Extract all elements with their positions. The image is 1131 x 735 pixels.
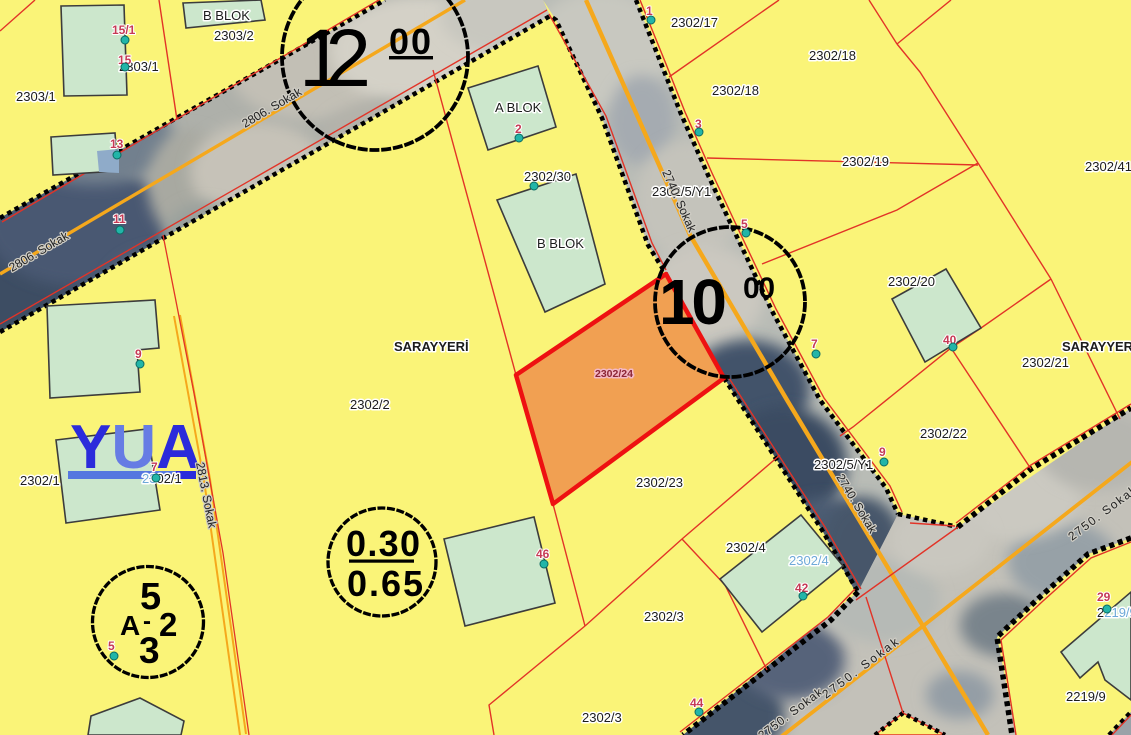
svg-text:2302/17: 2302/17 (671, 15, 718, 30)
svg-text:2303/2: 2303/2 (214, 28, 254, 43)
svg-text:29: 29 (1097, 590, 1111, 604)
svg-text:2302/21: 2302/21 (1022, 355, 1069, 370)
svg-text:2302/2: 2302/2 (350, 397, 390, 412)
svg-text:2: 2 (159, 606, 177, 643)
svg-text:SARAYYERİ: SARAYYERİ (1062, 339, 1131, 354)
svg-text:2302/1: 2302/1 (142, 471, 182, 486)
svg-text:2302/18: 2302/18 (712, 83, 759, 98)
svg-text:0.65: 0.65 (347, 563, 423, 604)
svg-text:A: A (120, 610, 140, 641)
svg-text:9: 9 (135, 347, 142, 361)
svg-text:SARAYYERİ: SARAYYERİ (394, 339, 469, 354)
svg-text:15/1: 15/1 (112, 23, 136, 37)
svg-text:B BLOK: B BLOK (203, 8, 250, 23)
svg-text:2219/9: 2219/9 (1066, 689, 1106, 704)
svg-text:2302/5/Y1: 2302/5/Y1 (814, 457, 873, 472)
svg-text:11: 11 (113, 212, 126, 226)
svg-text:2302/41: 2302/41 (1085, 159, 1131, 174)
svg-text:2219/9: 2219/9 (1097, 605, 1131, 620)
svg-text:2302/4: 2302/4 (726, 540, 766, 555)
svg-text:2302/23: 2302/23 (636, 475, 683, 490)
svg-text:9: 9 (879, 445, 886, 459)
svg-text:5: 5 (108, 639, 115, 653)
svg-text:2302/19: 2302/19 (842, 154, 889, 169)
svg-text:13: 13 (110, 137, 124, 151)
svg-text:2302/22: 2302/22 (920, 426, 967, 441)
svg-text:2302/4: 2302/4 (789, 553, 829, 568)
svg-text:A BLOK: A BLOK (495, 100, 542, 115)
svg-text:7: 7 (151, 460, 158, 474)
svg-text:10: 10 (659, 266, 727, 338)
svg-text:3: 3 (139, 630, 160, 671)
svg-text:00: 00 (389, 21, 431, 62)
svg-text:2302/24: 2302/24 (595, 368, 633, 380)
svg-text:B BLOK: B BLOK (537, 236, 584, 251)
svg-text:0.30: 0.30 (346, 523, 420, 564)
svg-text:2302/1: 2302/1 (20, 473, 60, 488)
svg-text:00: 00 (743, 272, 775, 305)
svg-text:44: 44 (690, 696, 704, 710)
svg-text:2302/20: 2302/20 (888, 274, 935, 289)
svg-text:2302/3: 2302/3 (644, 609, 684, 624)
svg-text:2302/30: 2302/30 (524, 169, 571, 184)
svg-text:2302/18: 2302/18 (809, 48, 856, 63)
svg-text:2303/1: 2303/1 (16, 89, 56, 104)
svg-text:46: 46 (536, 547, 550, 561)
svg-text:2302/3: 2302/3 (582, 710, 622, 725)
svg-text:7: 7 (811, 337, 818, 351)
svg-text:12: 12 (299, 13, 371, 104)
